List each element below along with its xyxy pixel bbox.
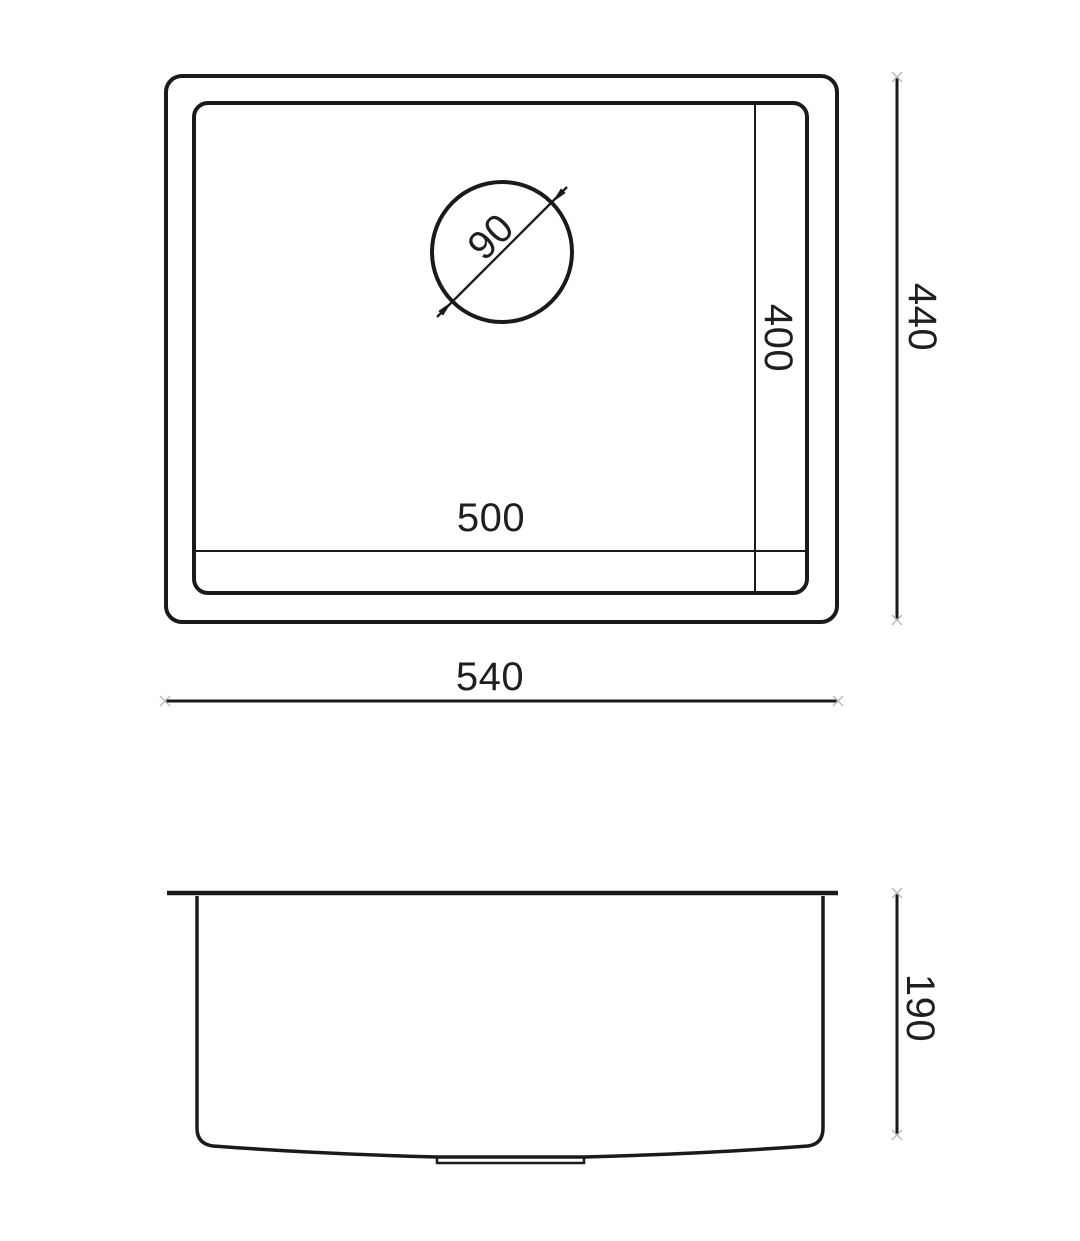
dimension-label-bowl-width: 500 xyxy=(457,498,525,538)
dimension-label-overall-height: 190 xyxy=(900,974,940,1042)
dimension-label-bowl-depth: 400 xyxy=(758,304,798,372)
sink-technical-drawing: 90 400 440 500 540 190 xyxy=(0,0,1080,1241)
dimension-lines xyxy=(160,72,902,1140)
dimension-end-ticks xyxy=(160,72,902,1140)
sink-outer-edge xyxy=(166,76,837,622)
dimension-label-overall-width: 540 xyxy=(456,657,524,697)
side-view xyxy=(167,893,838,1163)
dimension-label-overall-depth: 440 xyxy=(902,283,942,351)
drawing-geometry xyxy=(0,0,1080,1241)
sink-side-profile xyxy=(197,896,823,1157)
top-view xyxy=(166,76,837,622)
